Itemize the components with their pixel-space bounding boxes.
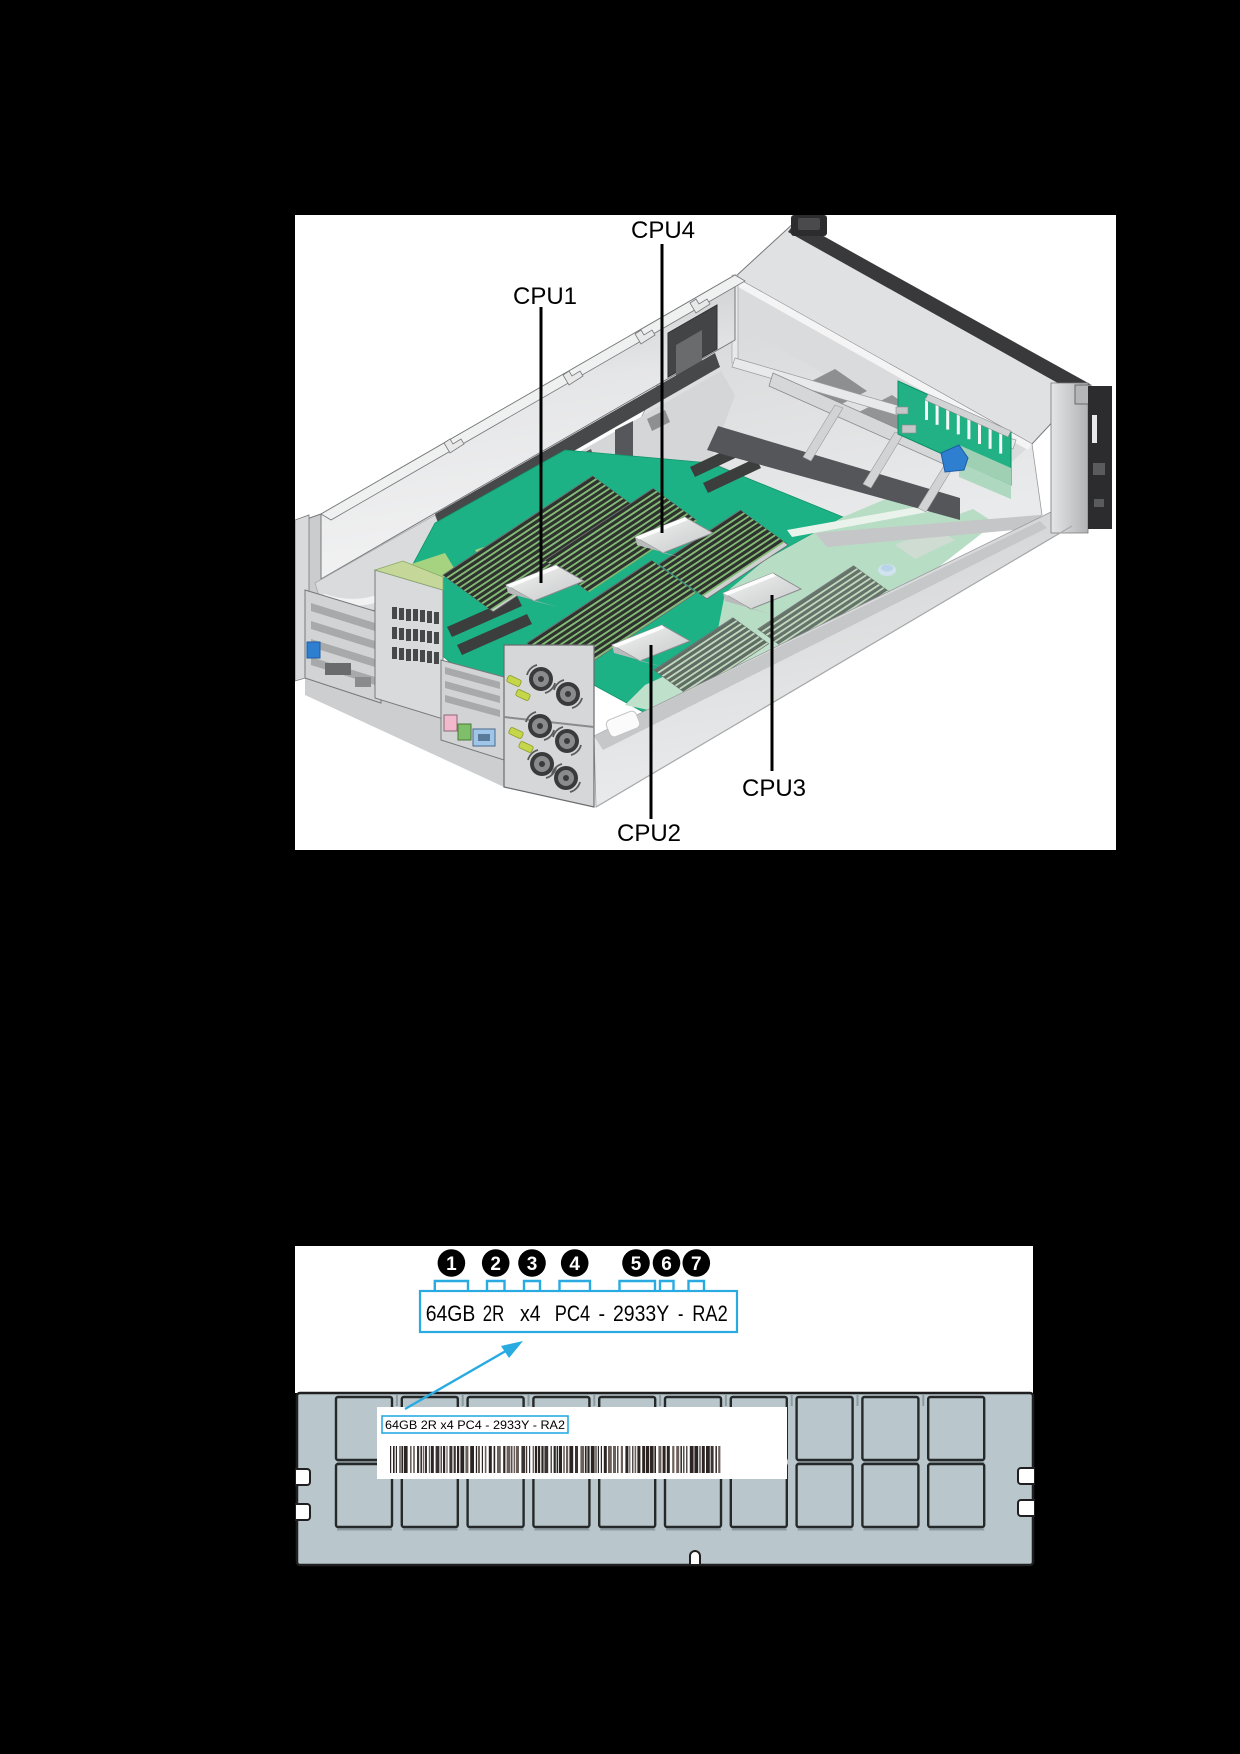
svg-text:6: 6 (661, 1254, 672, 1275)
svg-text:4: 4 (569, 1254, 580, 1275)
svg-text:7: 7 (691, 1254, 702, 1275)
svg-text:CPU4: CPU4 (631, 217, 695, 244)
svg-text:CPU3: CPU3 (742, 775, 806, 802)
svg-text:64GB2Rx4PC4-2933Y-RA2: 64GB2Rx4PC4-2933Y-RA2 (426, 1301, 728, 1326)
svg-text:2: 2 (490, 1254, 501, 1275)
svg-text:3: 3 (527, 1254, 538, 1275)
svg-text:5: 5 (631, 1254, 642, 1275)
svg-text:CPU2: CPU2 (617, 820, 681, 847)
svg-text:64GB 2R x4 PC4 - 2933Y - RA2: 64GB 2R x4 PC4 - 2933Y - RA2 (385, 1420, 565, 1432)
svg-text:1: 1 (446, 1254, 457, 1275)
svg-text:CPU1: CPU1 (513, 283, 577, 310)
